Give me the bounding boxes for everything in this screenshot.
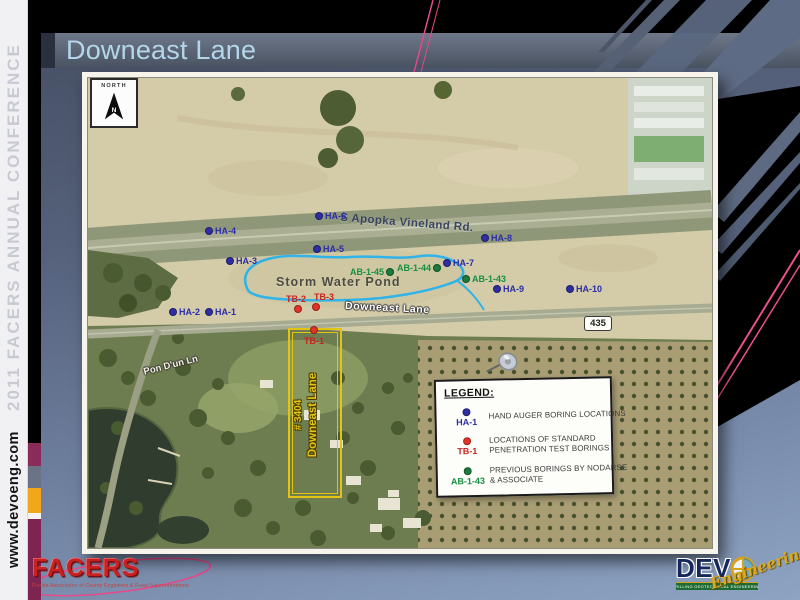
boring-label: HA-1 bbox=[215, 307, 236, 317]
legend-row-HA-1: HA-1HAND AUGER BORING LOCATIONS bbox=[444, 405, 602, 427]
sidebar-accent-strip bbox=[28, 0, 41, 600]
facers-tagline: Florida Association of County Engineers … bbox=[32, 583, 222, 589]
legend-symbol: AB-1-43 bbox=[446, 466, 490, 486]
boring-dot bbox=[169, 308, 177, 316]
legend-row-TB-1: TB-1LOCATIONS OF STANDARDPENETRATION TES… bbox=[445, 433, 603, 457]
boring-label: HA-7 bbox=[453, 258, 474, 268]
pushpin-icon bbox=[484, 346, 520, 382]
legend-items: HA-1HAND AUGER BORING LOCATIONSTB-1LOCAT… bbox=[444, 405, 604, 487]
legend-text: HAND AUGER BORING LOCATIONS bbox=[488, 409, 625, 422]
boring-label: HA-9 bbox=[503, 284, 524, 294]
boring-label: HA-4 bbox=[215, 226, 236, 236]
boring-dot bbox=[310, 326, 318, 334]
boring-dot bbox=[566, 285, 574, 293]
boring-label: HA-5 bbox=[323, 244, 344, 254]
title-bar-notch bbox=[40, 33, 55, 68]
boring-dot bbox=[462, 275, 470, 283]
accent-block-slate bbox=[28, 466, 41, 488]
legend-symbol: HA-1 bbox=[444, 408, 488, 428]
legend-dot bbox=[464, 467, 472, 475]
legend-text: LOCATIONS OF STANDARDPENETRATION TEST BO… bbox=[489, 433, 610, 456]
facers-logo-text: FACERS bbox=[32, 554, 222, 583]
boring-label: HA-2 bbox=[179, 307, 200, 317]
boring-dot bbox=[315, 212, 323, 220]
boring-label: HA-8 bbox=[491, 233, 512, 243]
sidebar-conference-text: 2011 FACERS ANNUAL CONFERENCE bbox=[0, 12, 28, 442]
boring-dot bbox=[433, 264, 441, 272]
legend-box: LEGEND: HA-1HAND AUGER BORING LOCATIONST… bbox=[434, 376, 614, 497]
legend-key: HA-1 bbox=[445, 417, 489, 428]
presentation-slide: Downeast Lane 2011 FACERS ANNUAL CONFERE… bbox=[0, 0, 800, 600]
accent-block-maroon bbox=[28, 443, 41, 466]
boring-label: TB-2 bbox=[286, 294, 306, 304]
legend-key: TB-1 bbox=[445, 446, 489, 457]
aerial-map: S Apopka Vineland Rd. Storm Water Pond D… bbox=[88, 78, 712, 548]
boring-label: HA-6 bbox=[325, 211, 346, 221]
boring-label: AB-1-45 bbox=[350, 267, 384, 277]
boring-label: AB-1-43 bbox=[472, 274, 506, 284]
legend-symbol: TB-1 bbox=[445, 437, 489, 457]
boring-label: TB-3 bbox=[314, 292, 334, 302]
boring-dot bbox=[205, 227, 213, 235]
boring-dot bbox=[481, 234, 489, 242]
aerial-map-frame: S Apopka Vineland Rd. Storm Water Pond D… bbox=[82, 72, 718, 554]
boring-label: HA-10 bbox=[576, 284, 602, 294]
boring-dot bbox=[226, 257, 234, 265]
devo-logo: DEV DRILLING GEOTECHNICAL ENGINEERING En… bbox=[672, 551, 800, 599]
boring-dot bbox=[312, 303, 320, 311]
boring-dot bbox=[313, 245, 321, 253]
legend-title: LEGEND: bbox=[444, 384, 602, 399]
legend-key: AB-1-43 bbox=[446, 475, 490, 486]
page-title: Downeast Lane bbox=[66, 35, 256, 66]
boring-dot bbox=[294, 305, 302, 313]
legend-text: PREVIOUS BORINGS BY NODARSE& ASSOCIATE bbox=[490, 463, 628, 487]
legend-dot bbox=[463, 437, 471, 445]
sidebar-url-text: www.devoeng.com bbox=[0, 438, 28, 562]
accent-block-amber bbox=[28, 488, 41, 513]
legend-row-AB-1-43: AB-1-43PREVIOUS BORINGS BY NODARSE& ASSO… bbox=[446, 463, 604, 487]
boring-label: TB-1 bbox=[304, 336, 324, 346]
boring-dot bbox=[386, 268, 394, 276]
boring-dot bbox=[443, 259, 451, 267]
boring-dot bbox=[205, 308, 213, 316]
legend-dot bbox=[462, 408, 470, 416]
boring-dot bbox=[493, 285, 501, 293]
facers-logo: FACERS Florida Association of County Eng… bbox=[32, 554, 222, 589]
boring-label: AB-1-44 bbox=[397, 263, 431, 273]
boring-label: HA-3 bbox=[236, 256, 257, 266]
